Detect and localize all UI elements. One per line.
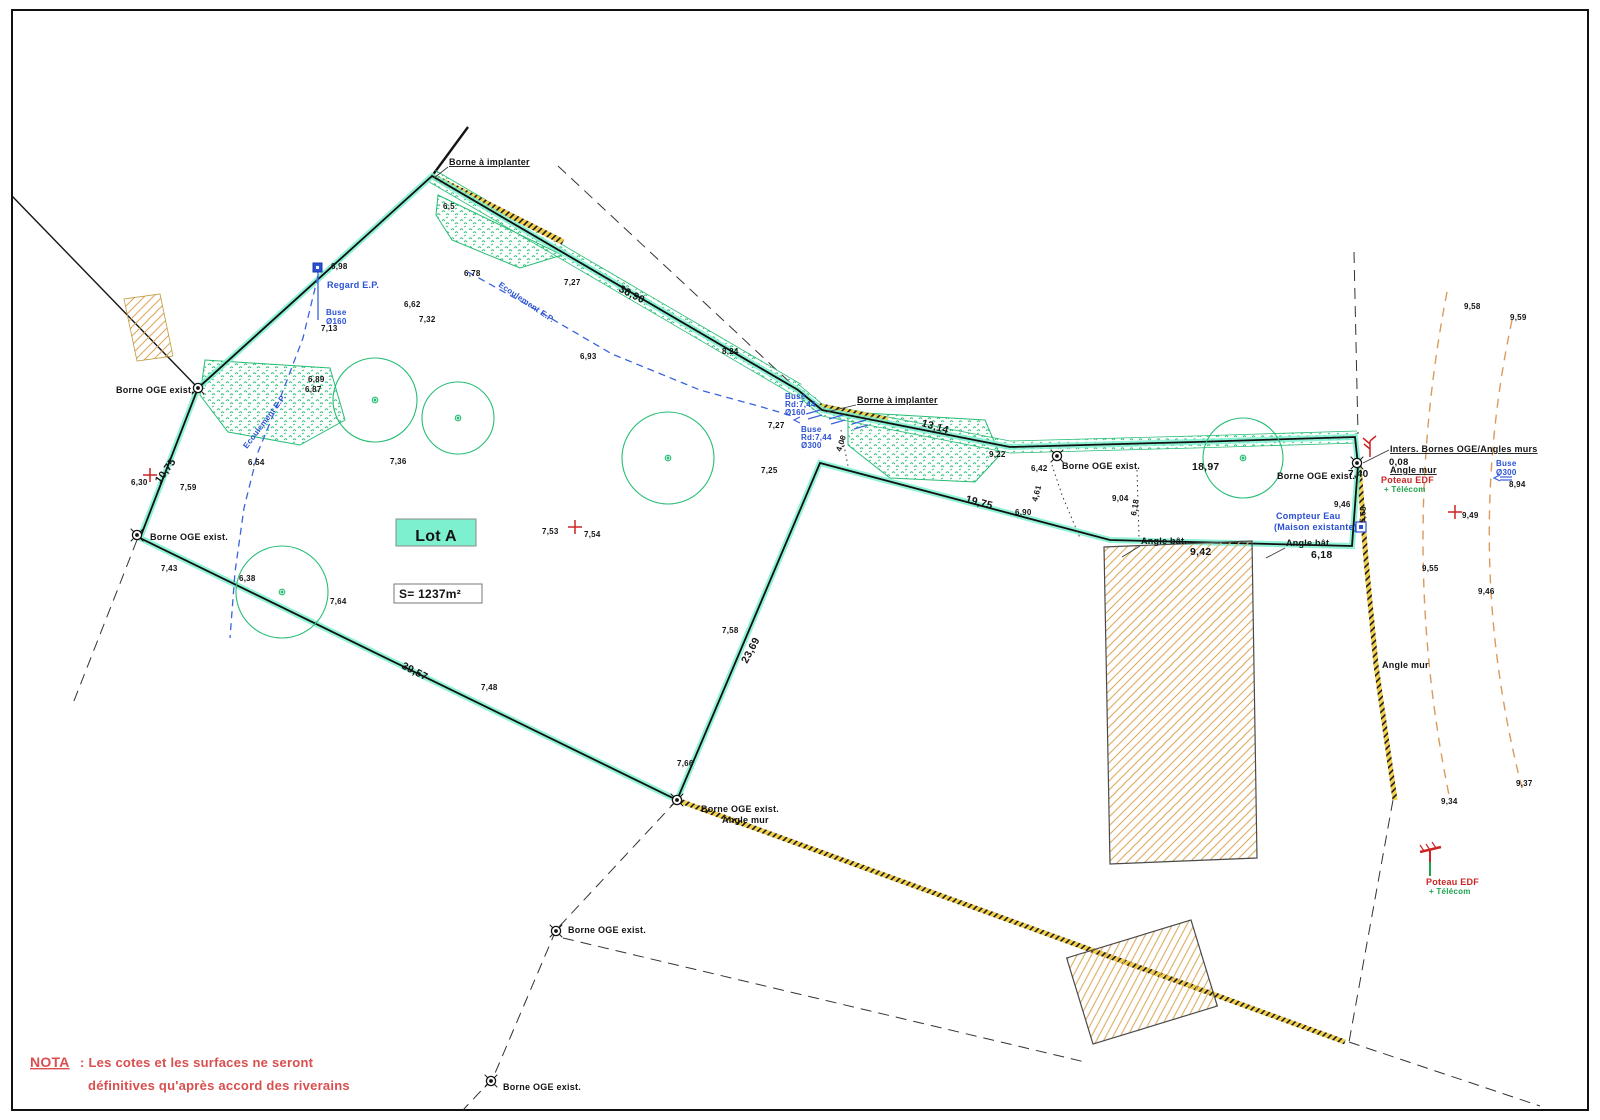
label-borne-oge: Borne OGE exist. [1277, 471, 1355, 481]
label-ecoulement: Ecoulement E.P. [497, 280, 556, 324]
nota-line2: définitives qu'après accord des riverain… [88, 1078, 350, 1093]
dim-boundary: 39,57 [400, 660, 430, 683]
label-buse: Ø300 [1496, 468, 1517, 477]
spot-height: 6,90 [1015, 508, 1032, 517]
survey-plan-drawing: 6,56,987,136,627,326,787,276,938,246,896… [0, 0, 1600, 1120]
building-annex [1067, 920, 1218, 1044]
spot-height: 7,32 [419, 315, 436, 324]
label-telecom: + Télécom [1429, 887, 1471, 896]
spot-height: 6,89 [308, 375, 325, 384]
spot-height: 7,25 [761, 466, 778, 475]
label-buse: Buse [326, 308, 347, 317]
label-borne-oge: Borne OGE exist. [1062, 461, 1140, 471]
spot-height: 7,59 [180, 483, 197, 492]
lot-name: Lot A [415, 528, 457, 545]
spot-height: 7,58 [722, 626, 739, 635]
label-angle-mur: Angle mur [1390, 465, 1437, 475]
label-borne-oge: Borne OGE exist. [150, 532, 228, 542]
label-poteau-edf: Poteau EDF [1426, 877, 1479, 887]
spot-height: 9,37 [1516, 779, 1533, 788]
label-poteau-edf: Poteau EDF [1381, 475, 1434, 485]
label-compteur-eau: Compteur Eau [1276, 511, 1341, 521]
spot-height: 9,46 [1334, 500, 1351, 509]
label-angle-mur: Angle mur [722, 815, 769, 825]
spot-height: 7,54 [584, 530, 601, 539]
spot-height: 6,98 [331, 262, 348, 271]
spot-height: 9,34 [1441, 797, 1458, 806]
spot-height: 6,62 [404, 300, 421, 309]
label-buse: Ø160 [326, 317, 347, 326]
spot-height: 8,94 [1509, 480, 1526, 489]
label-borne-a-implanter: Borne à implanter [449, 157, 530, 167]
survey-plan-page: 6,56,987,136,627,326,787,276,938,246,896… [0, 0, 1600, 1120]
dim-small: 4,06 [834, 434, 848, 453]
label-compteur-eau: (Maison existante) [1274, 522, 1357, 532]
spot-height: 9,04 [1112, 494, 1129, 503]
dim-boundary: 18,97 [1192, 461, 1220, 473]
spot-height: 9,58 [1464, 302, 1481, 311]
spot-height: 7,27 [768, 421, 785, 430]
spot-height: 7,64 [330, 597, 347, 606]
spot-height: 9,46 [1478, 587, 1495, 596]
label-inters-bornes: Inters. Bornes OGE/Angles murs [1390, 444, 1538, 454]
dim-small: 5,68 [1358, 506, 1368, 523]
regard-ep-symbol [313, 263, 322, 272]
nota-line1: : Les cotes et les surfaces ne seront [80, 1055, 314, 1070]
dim-small: 4,61 [1030, 484, 1043, 503]
spot-height: 7,66 [677, 759, 694, 768]
dim-boundary: 6,18 [1311, 549, 1332, 561]
spot-height: 7,43 [161, 564, 178, 573]
spot-height: 6,78 [464, 269, 481, 278]
spot-height: 8,24 [722, 347, 739, 356]
dim-small: 6,18 [1129, 498, 1141, 516]
spot-height: 6,93 [580, 352, 597, 361]
label-borne-a-implanter: Borne à implanter [857, 395, 938, 405]
label-angle-mur: Angle mur [1382, 660, 1429, 670]
spot-height: 7,48 [481, 683, 498, 692]
label-buse: Ø300 [801, 441, 822, 450]
label-buse: Ø160 [785, 408, 806, 417]
dim-boundary: 9,42 [1190, 546, 1211, 558]
spot-height: 7,27 [564, 278, 581, 287]
spot-height: 9,59 [1510, 313, 1527, 322]
nota-title: NOTA [30, 1054, 70, 1070]
annotations-layer: 6,56,987,136,627,326,787,276,938,246,896… [30, 157, 1538, 1093]
spot-height: 7,53 [542, 527, 559, 536]
spot-height: 6,54 [248, 458, 265, 467]
leader-lines [434, 167, 1389, 558]
spot-height: 6,5 [443, 202, 455, 211]
dashed-boundaries [72, 166, 1540, 1110]
dim-boundary: 10,75 [153, 456, 179, 485]
hedge-band [429, 170, 1357, 453]
label-borne-oge: Borne OGE exist. [116, 385, 194, 395]
lot-surface: S= 1237m² [399, 587, 461, 601]
spot-height: 6,38 [239, 574, 256, 583]
label-borne-oge: Borne OGE exist. [503, 1082, 581, 1092]
label-borne-oge: Borne OGE exist. [701, 804, 779, 814]
label-borne-oge: Borne OGE exist. [568, 925, 646, 935]
spot-height: 9,55 [1422, 564, 1439, 573]
building-main [1104, 541, 1257, 864]
label-telecom: + Télécom [1384, 485, 1426, 494]
spot-height: 6,30 [131, 478, 148, 487]
label-buse: Buse [1496, 459, 1517, 468]
label-angle-bat: Angle bât. [1286, 538, 1332, 548]
label-regard-ep: Regard E.P. [327, 280, 379, 290]
dim-boundary: 19,75 [964, 493, 994, 512]
spot-height: 9,49 [1462, 511, 1479, 520]
spot-height: 6,42 [1031, 464, 1048, 473]
spot-height: 9,22 [989, 450, 1006, 459]
vegetation-patches [200, 195, 1000, 482]
spot-height: 6,87 [305, 385, 322, 394]
ditch-arcs [1423, 292, 1522, 795]
label-angle-bat: Angle bât. [1141, 536, 1187, 546]
spot-height: 7,36 [390, 457, 407, 466]
